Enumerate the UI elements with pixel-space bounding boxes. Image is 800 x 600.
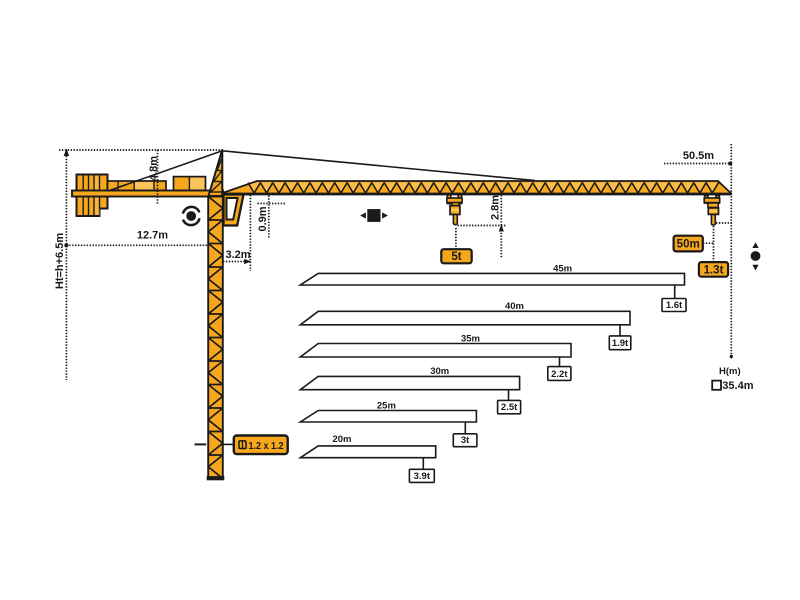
svg-text:40m: 40m <box>505 301 524 312</box>
svg-text:0.9m: 0.9m <box>257 206 269 231</box>
svg-text:3t: 3t <box>461 435 470 446</box>
svg-text:1.6t: 1.6t <box>666 300 683 311</box>
svg-text:50.5m: 50.5m <box>683 150 714 162</box>
svg-text:H(m): H(m) <box>719 366 741 377</box>
svg-text:2.8m: 2.8m <box>490 195 502 220</box>
svg-text:2.2t: 2.2t <box>551 369 568 380</box>
svg-text:50m: 50m <box>677 239 700 251</box>
svg-text:25m: 25m <box>377 400 396 411</box>
svg-text:3.9t: 3.9t <box>414 471 431 482</box>
svg-text:4.8m: 4.8m <box>148 156 160 181</box>
svg-text:2.5t: 2.5t <box>501 402 518 413</box>
svg-text:Ht=h+6.5m: Ht=h+6.5m <box>54 233 66 289</box>
svg-text:35m: 35m <box>461 333 480 344</box>
svg-text:12.7m: 12.7m <box>137 230 168 242</box>
svg-text:1.3t: 1.3t <box>704 264 724 276</box>
svg-text:3.2m: 3.2m <box>225 249 250 261</box>
svg-text:30m: 30m <box>430 366 449 377</box>
svg-text:20m: 20m <box>332 434 351 445</box>
svg-text:45m: 45m <box>553 263 572 274</box>
svg-text:1.9t: 1.9t <box>612 338 629 349</box>
svg-text:1.2 x 1.2: 1.2 x 1.2 <box>249 440 284 452</box>
svg-text:35.4m: 35.4m <box>722 380 753 392</box>
svg-text:5t: 5t <box>451 251 461 263</box>
